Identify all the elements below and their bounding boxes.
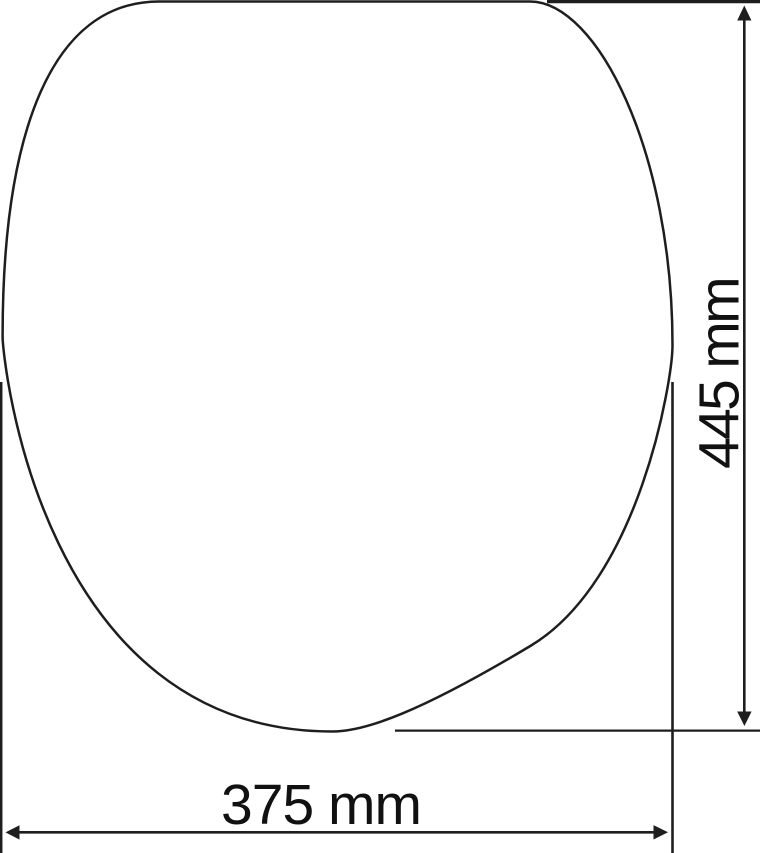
svg-text:375 mm: 375 mm (221, 773, 421, 837)
svg-text:445 mm: 445 mm (688, 279, 752, 469)
